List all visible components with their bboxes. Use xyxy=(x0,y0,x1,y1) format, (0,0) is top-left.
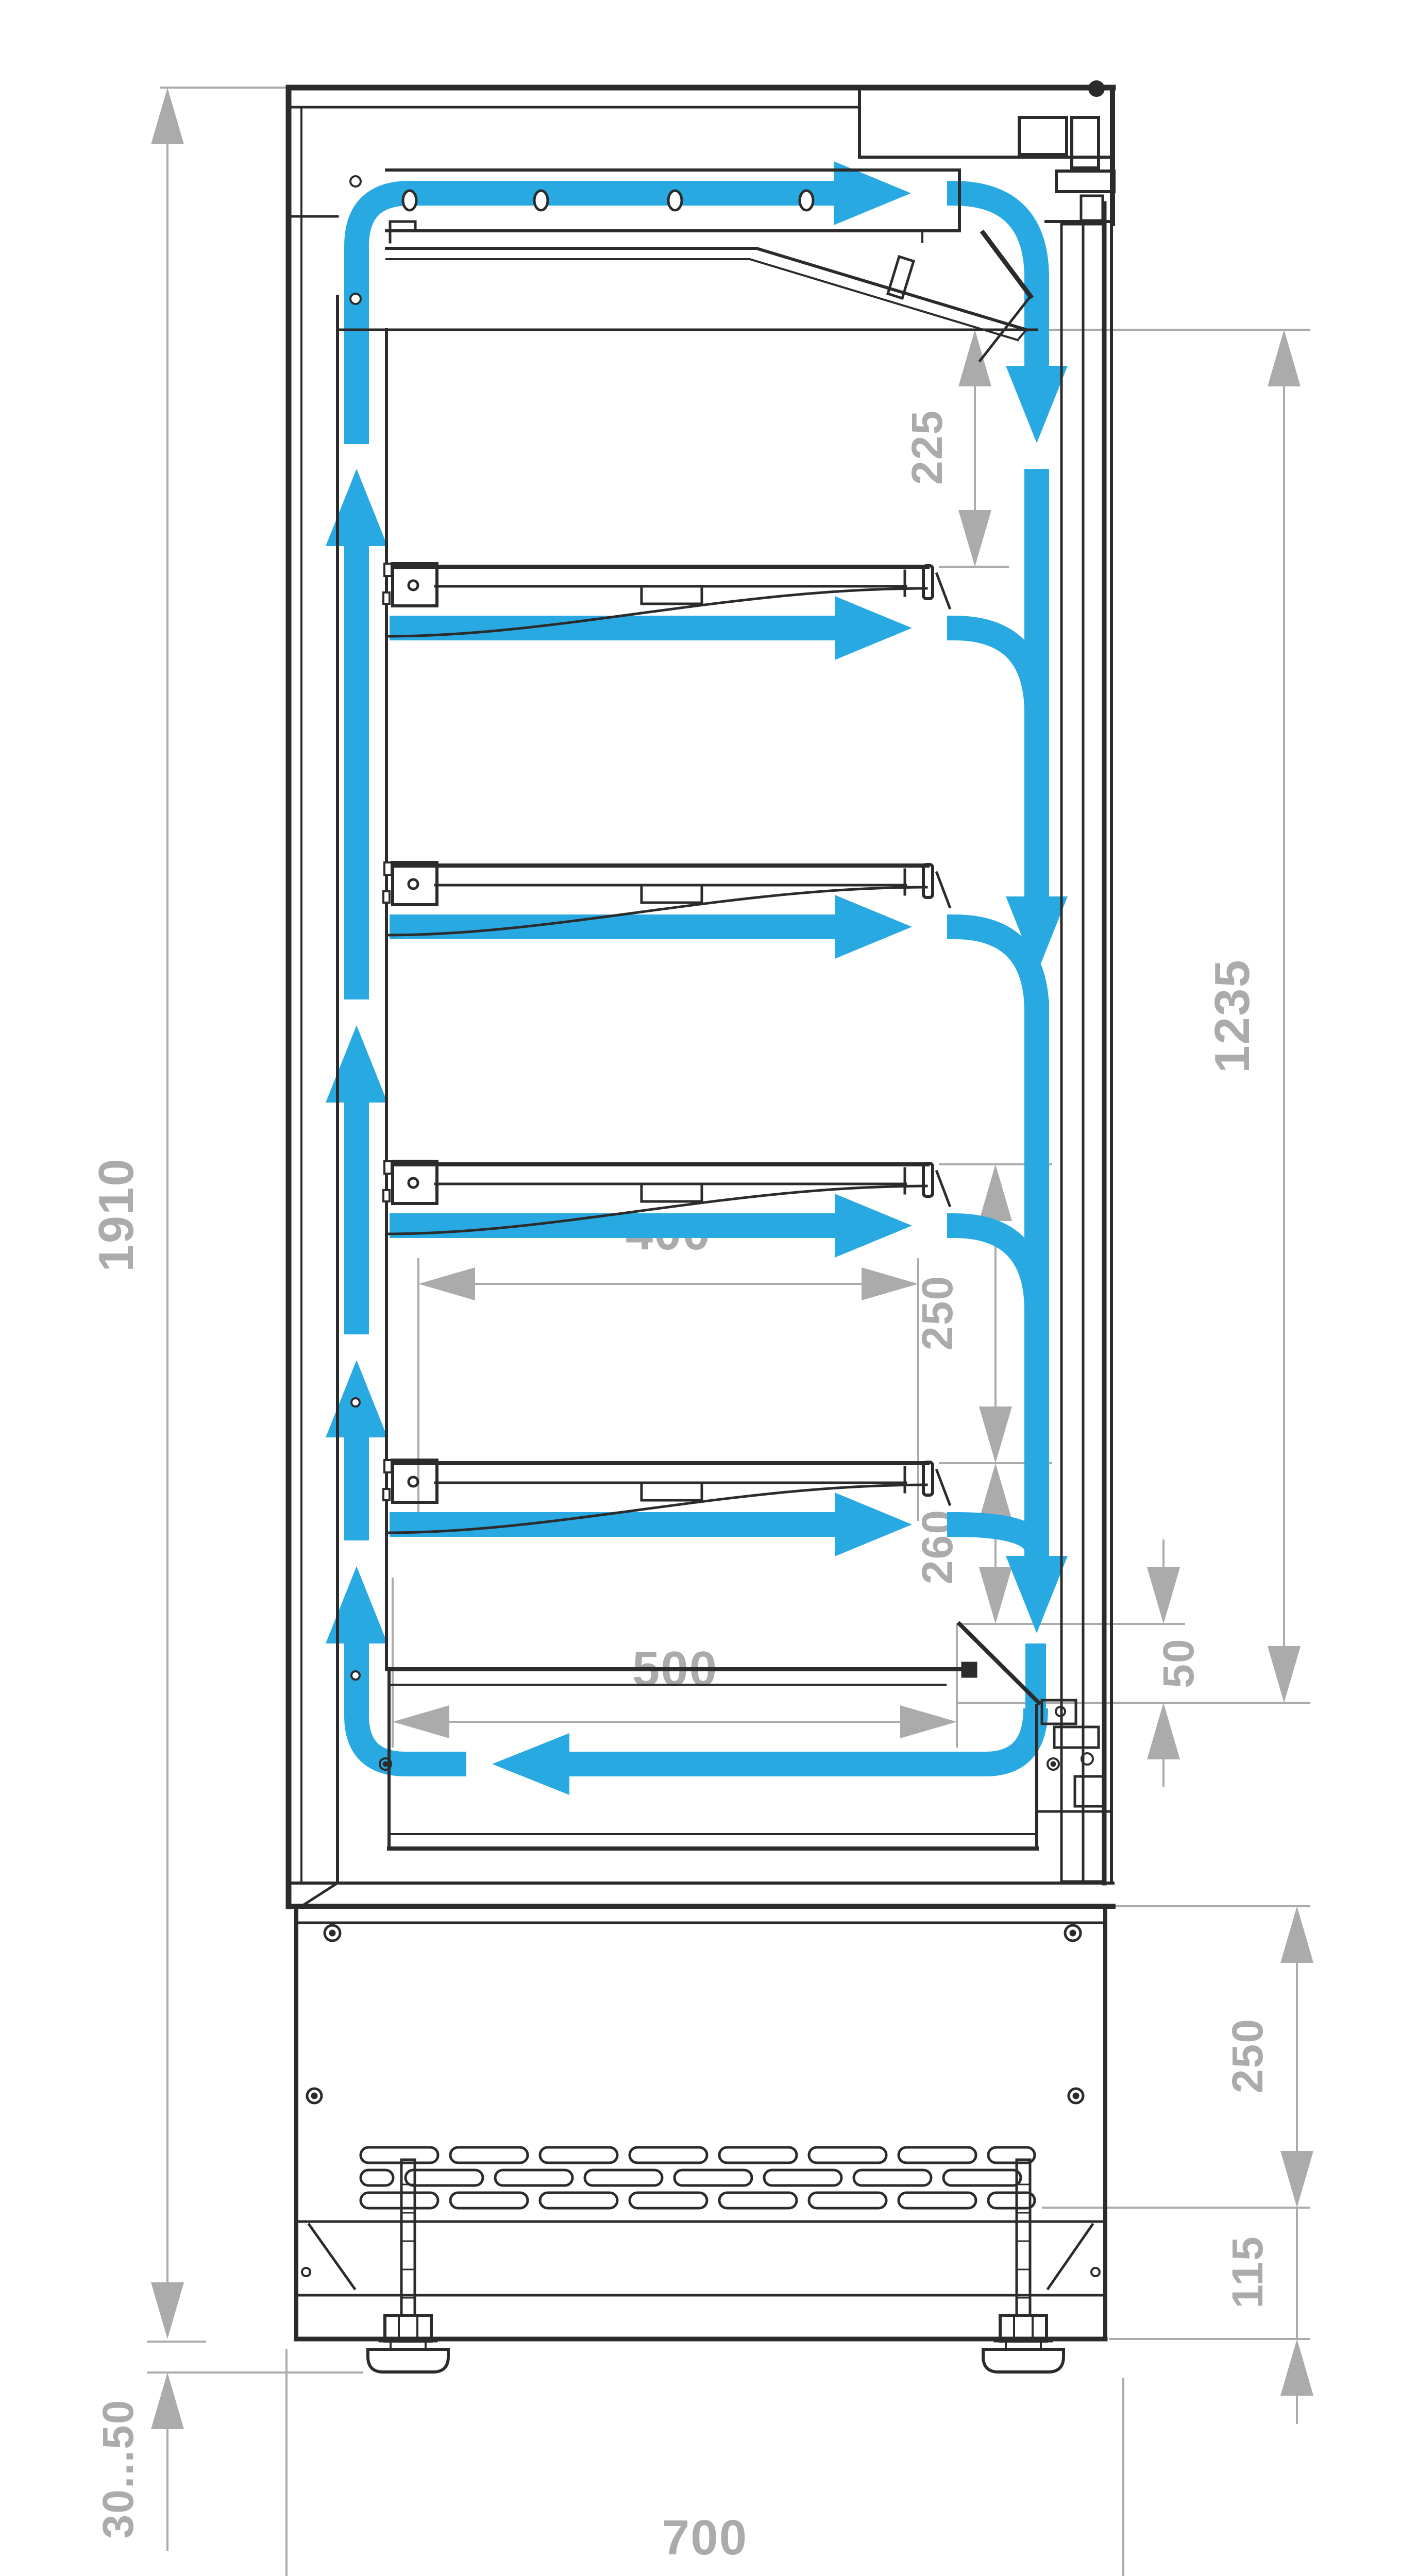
dim-label-curtain-drop: 1235 xyxy=(1205,959,1260,1073)
arrow-down-icon xyxy=(1280,2151,1313,2208)
airflow-arrow-right-icon xyxy=(835,895,912,959)
dimension-arrows-and-text: 1910 30...50 700 225 1235 50 250 260 400… xyxy=(89,88,1313,2576)
arrow-right-icon xyxy=(900,1705,957,1738)
arrow-down-icon xyxy=(979,1406,1012,1463)
dim-label-shelf-spacing: 250 xyxy=(913,1275,961,1350)
door-top-hinge xyxy=(1019,82,1114,224)
vent-grille xyxy=(361,2147,1035,2208)
drip-tray xyxy=(386,248,1026,340)
airflow-arrow-down-icon xyxy=(1006,1556,1068,1633)
airflow-bottom-return xyxy=(569,1708,1036,1764)
arrow-up-icon xyxy=(151,88,184,144)
airflow-arrow-right-icon xyxy=(835,1194,912,1258)
arrow-up-icon xyxy=(151,2372,184,2429)
airflow-arrow-down-icon xyxy=(1006,366,1068,443)
arrow-up-icon xyxy=(1268,330,1301,386)
wall-screw xyxy=(351,1671,360,1680)
dim-label-overall-height: 1910 xyxy=(89,1158,144,1272)
separator-brace xyxy=(301,1883,338,1906)
glass-door xyxy=(1061,88,1111,1883)
airflow-arrow-up-icon xyxy=(326,1566,387,1643)
airflow-arrow-up-icon xyxy=(326,469,387,546)
arrow-down-icon xyxy=(958,510,991,567)
dim-label-base-height: 250 xyxy=(1223,2018,1272,2093)
wall-screw xyxy=(350,176,361,187)
arrow-down-icon xyxy=(1268,1646,1301,1703)
arrow-left-icon xyxy=(393,1705,449,1738)
arrow-right-icon xyxy=(862,1267,918,1300)
arrow-left-icon xyxy=(418,1267,475,1300)
airflow-arrow-left-icon xyxy=(492,1733,569,1795)
airflow-shelf-jet-curve xyxy=(947,927,1037,1058)
top-step xyxy=(859,88,1113,157)
arrow-down-icon xyxy=(1147,1567,1180,1624)
airflow-arrow-up-icon xyxy=(326,1025,387,1103)
dim-label-vent-height: 115 xyxy=(1223,2235,1272,2309)
arrow-down-icon xyxy=(979,1567,1012,1624)
arrow-up-icon xyxy=(958,330,991,386)
arrow-up-icon xyxy=(1280,1906,1313,1963)
dim-label-foot-range: 30...50 xyxy=(94,2399,142,2539)
arrow-up-icon xyxy=(1280,2339,1313,2396)
dim-label-depth: 700 xyxy=(662,2510,748,2565)
airflow-arrow-right-icon xyxy=(835,1493,912,1556)
dim-label-top-gap: 225 xyxy=(903,410,951,485)
arrow-up-icon xyxy=(979,1463,1012,1520)
dimension-layer xyxy=(147,88,1310,2576)
wall-screw xyxy=(351,1398,360,1406)
arrow-up-icon xyxy=(979,1164,1012,1221)
cabinet-section-diagram: 1910 30...50 700 225 1235 50 250 260 400… xyxy=(0,0,1417,2576)
arrow-down-icon xyxy=(151,2282,184,2339)
wall-screw xyxy=(350,294,361,304)
arrow-up-icon xyxy=(1147,1703,1180,1759)
airflow-arrow-right-icon xyxy=(835,596,912,660)
airflow-shelf-jet-curve xyxy=(947,628,1037,759)
technical-drawing-page: 1910 30...50 700 225 1235 50 250 260 400… xyxy=(0,0,1417,2576)
dim-label-intake-gap: 50 xyxy=(1154,1638,1203,1688)
machine-base xyxy=(296,1906,1105,2339)
